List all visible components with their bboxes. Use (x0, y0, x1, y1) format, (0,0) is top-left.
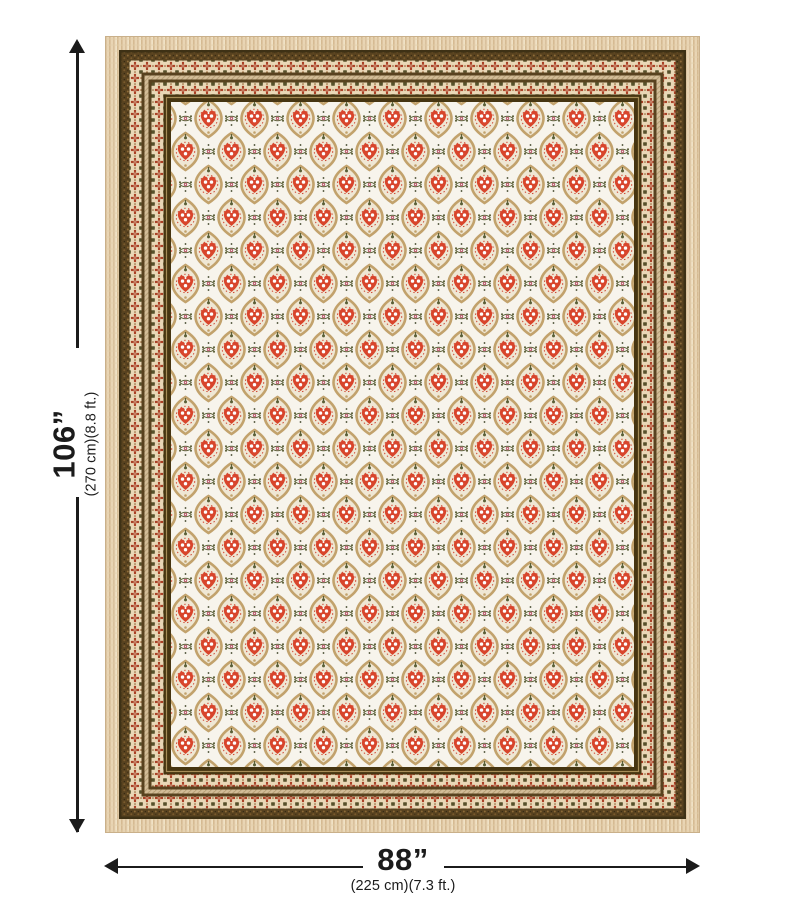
height-conversion: (270 cm)(8.8 ft.) (84, 392, 100, 497)
width-dimension-line-left (110, 866, 363, 869)
arrow-left-icon (104, 858, 118, 874)
height-dimension-line-top (76, 42, 79, 348)
width-dimension-line-right (444, 866, 694, 869)
arrow-up-icon (69, 39, 85, 53)
width-conversion: (225 cm)(7.3 ft.) (351, 879, 456, 895)
height-value: 106” (48, 409, 81, 478)
product-dimension-figure: 106” (270 cm)(8.8 ft.) 88” (225 cm)(7.3 … (0, 0, 799, 914)
width-dimension-label: 88” (225 cm)(7.3 ft.) (351, 844, 456, 894)
bedsheet-image (105, 36, 700, 833)
width-value: 88” (377, 844, 428, 877)
arrow-right-icon (686, 858, 700, 874)
height-dimension-line-bottom (76, 497, 79, 832)
arrow-down-icon (69, 819, 85, 833)
height-dimension-label: 106” (270 cm)(8.8 ft.) (48, 392, 99, 497)
